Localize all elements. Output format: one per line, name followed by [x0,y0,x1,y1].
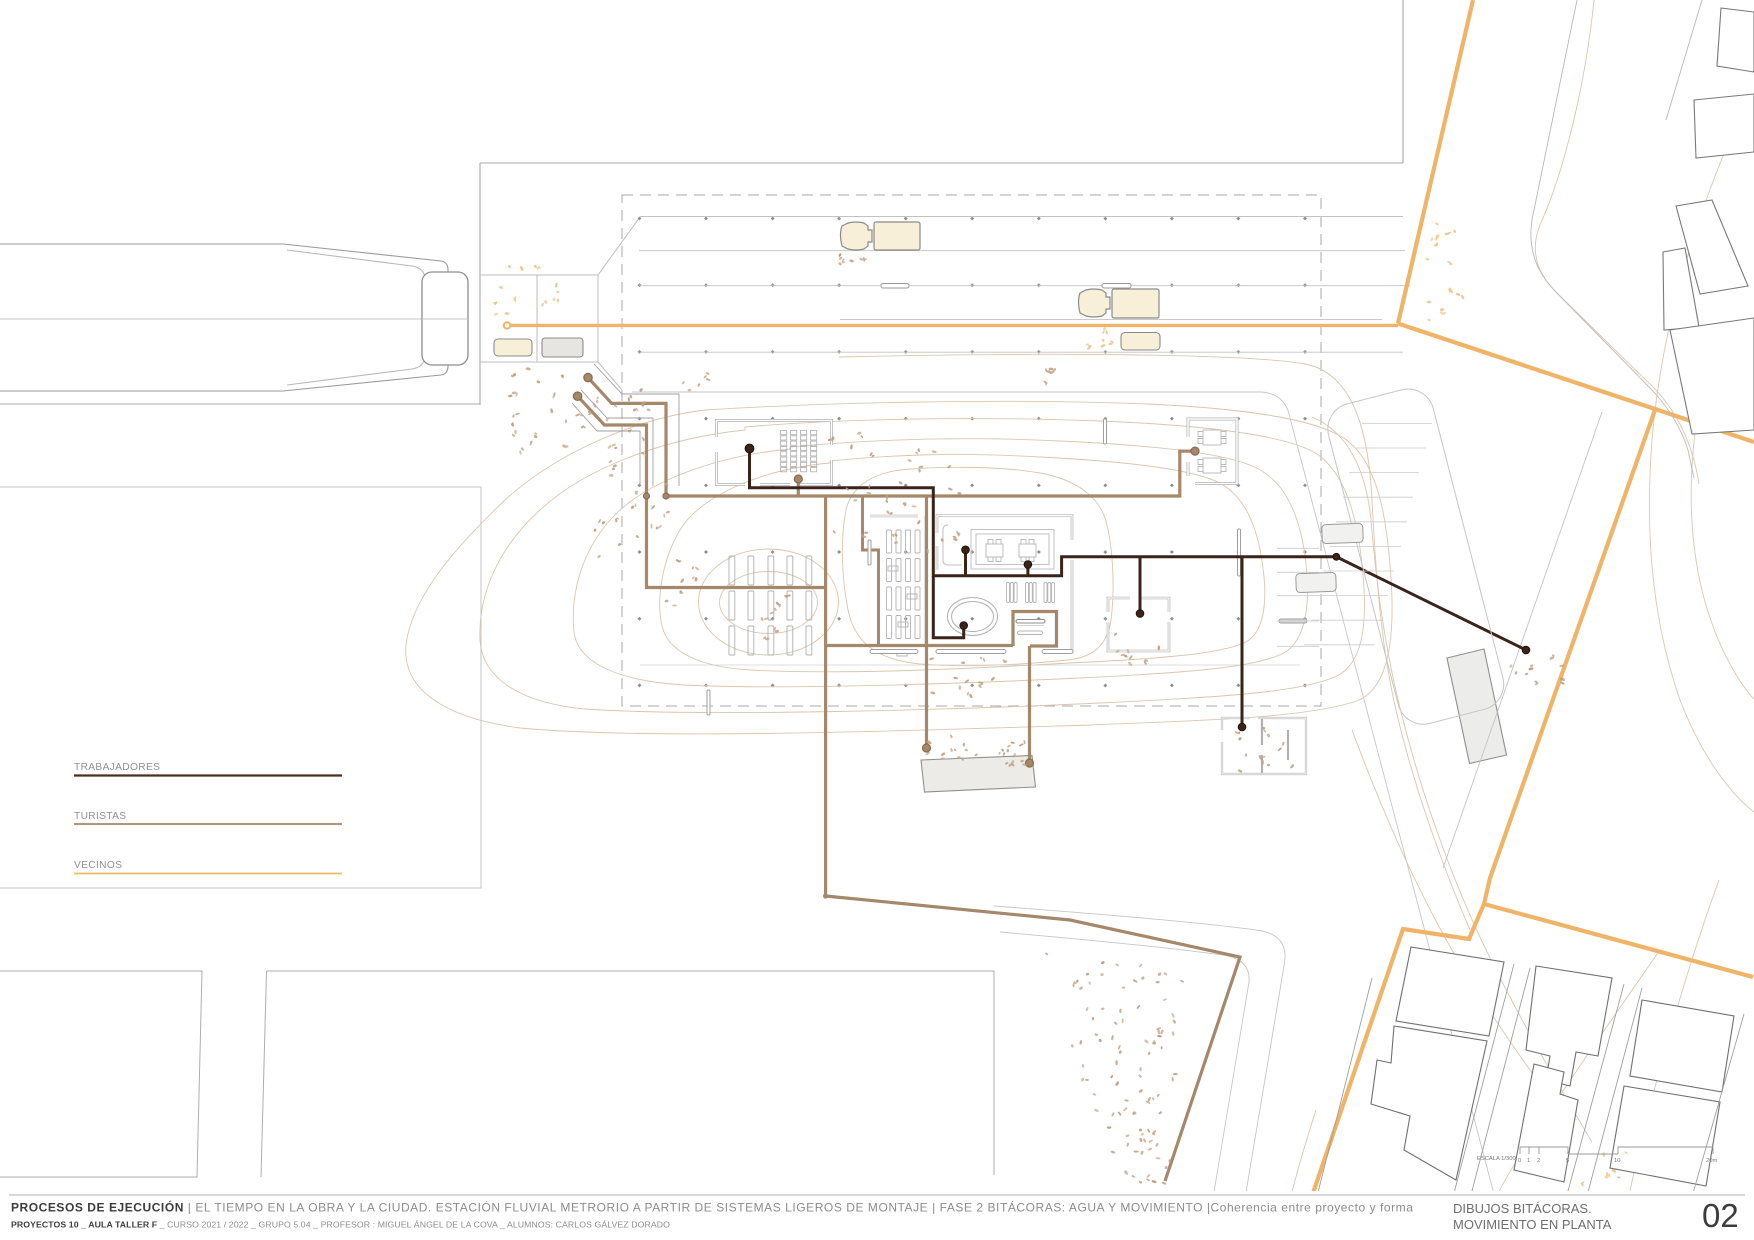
svg-text:02: 02 [1702,1197,1739,1234]
svg-text:TRABAJADORES: TRABAJADORES [74,762,160,773]
svg-text:MOVIMIENTO EN PLANTA: MOVIMIENTO EN PLANTA [1453,1217,1612,1232]
svg-text:TURISTAS: TURISTAS [74,811,126,822]
svg-text:5: 5 [1566,1158,1569,1164]
svg-text:2: 2 [1537,1158,1540,1164]
svg-text:ESCALA 1/300: ESCALA 1/300 [1477,1156,1516,1162]
svg-text:PROYECTOS 10 _ AULA TALLER F _: PROYECTOS 10 _ AULA TALLER F _ CURSO 202… [11,1220,670,1230]
svg-text:VECINOS: VECINOS [74,860,122,871]
svg-text:20m: 20m [1706,1158,1717,1164]
svg-text:PROCESOS DE EJECUCIÓN | EL TIE: PROCESOS DE EJECUCIÓN | EL TIEMPO EN LA … [11,1200,1413,1215]
svg-text:DIBUJOS BITÁCORAS.: DIBUJOS BITÁCORAS. [1453,1201,1592,1216]
svg-text:1: 1 [1527,1158,1530,1164]
svg-text:10: 10 [1614,1158,1620,1164]
svg-text:0: 0 [1518,1158,1521,1164]
